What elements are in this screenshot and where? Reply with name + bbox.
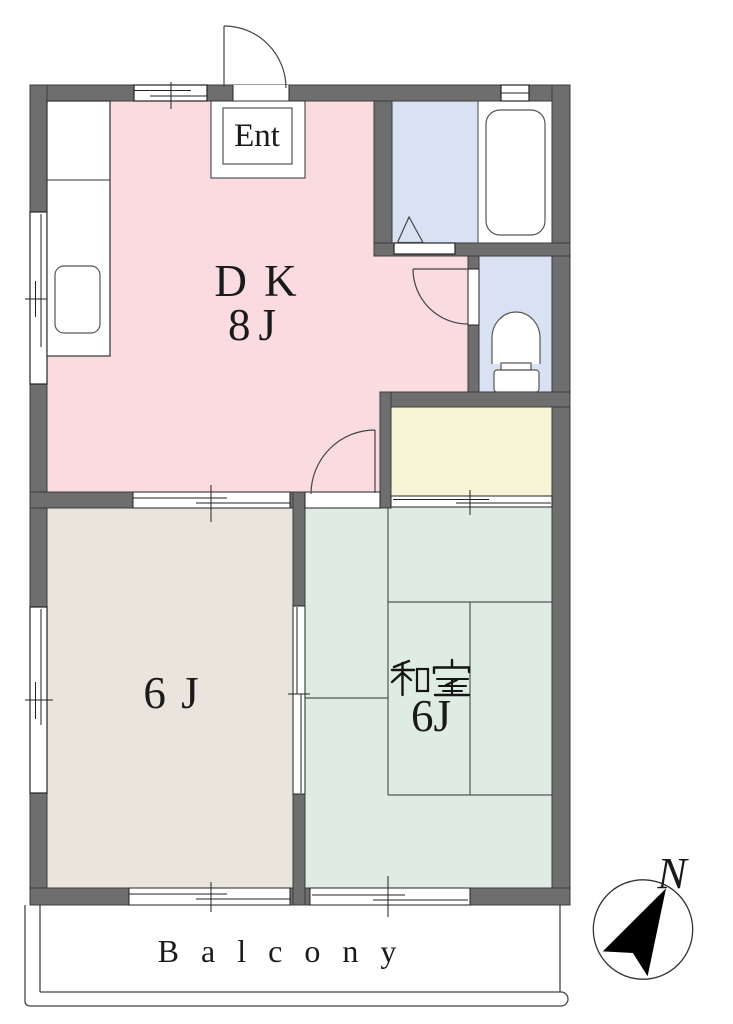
- svg-text:6J: 6J: [411, 691, 451, 741]
- svg-text:8J: 8J: [228, 300, 284, 350]
- svg-text:Ent: Ent: [234, 118, 280, 154]
- svg-text:Balcony: Balcony: [158, 933, 419, 969]
- svg-text:D K: D K: [214, 256, 299, 306]
- svg-text:6 J: 6 J: [143, 668, 200, 718]
- svg-text:N: N: [656, 849, 689, 898]
